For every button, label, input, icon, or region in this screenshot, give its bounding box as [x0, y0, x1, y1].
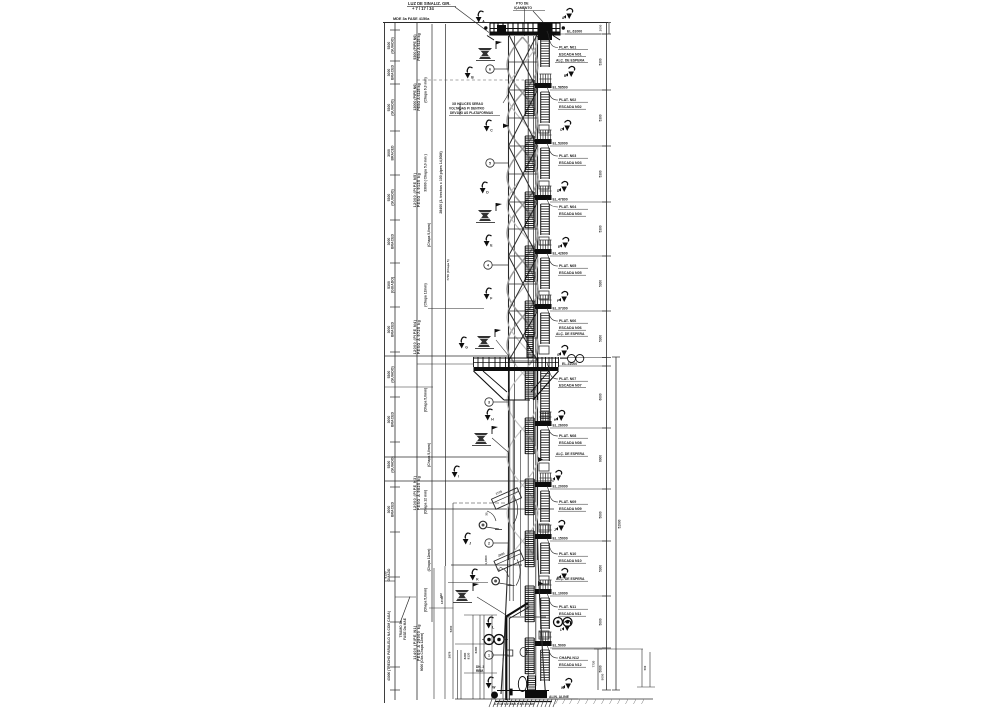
svg-text:PLAT. N08: PLAT. N08	[559, 434, 576, 438]
svg-text:(Chapa 5,0mm): (Chapa 5,0mm)	[427, 223, 431, 247]
svg-text:F: F	[557, 299, 559, 303]
svg-text:PLAT. N02: PLAT. N02	[559, 98, 576, 102]
svg-text:5300: 5300	[599, 225, 603, 232]
svg-text:EL.15000: EL.15000	[553, 537, 568, 541]
svg-text:EL.10000: EL.10000	[553, 592, 568, 596]
svg-text:8130: 8130	[467, 652, 471, 659]
svg-text:5000: 5000	[599, 511, 603, 518]
svg-text:PESO A 9125 kg: PESO A 9125 kg	[417, 173, 421, 208]
svg-text:5300: 5300	[599, 114, 603, 121]
svg-text:ESCADA N12: ESCADA N12	[559, 663, 582, 667]
svg-text:5: 5	[489, 161, 491, 165]
svg-text:G: G	[557, 353, 560, 357]
svg-text:(GUIADO): (GUIADO)	[391, 366, 395, 382]
svg-text:EL.5000: EL.5000	[553, 644, 566, 648]
svg-text:4: 4	[487, 263, 489, 267]
svg-text:ESCADA N03: ESCADA N03	[559, 161, 582, 165]
svg-text:PTO DE: PTO DE	[516, 2, 529, 6]
svg-text:PLAT. N04: PLAT. N04	[559, 205, 576, 209]
svg-text:9000 (Obs Chapa 12mm): 9000 (Obs Chapa 12mm)	[420, 633, 424, 671]
svg-text:(Chapa 6,3 mm): (Chapa 6,3 mm)	[424, 77, 428, 102]
svg-text:DEV1DO AS PLATAFORMAS: DEV1DO AS PLATAFORMAS	[450, 111, 493, 115]
svg-text:BRACED: BRACED	[391, 234, 395, 249]
svg-text:1,3060: 1,3060	[484, 555, 488, 565]
svg-text:5000: 5000	[601, 673, 605, 680]
svg-text:J: J	[469, 542, 471, 546]
svg-text:5000: 5000	[599, 618, 603, 625]
svg-text:(GUIADO): (GUIADO)	[391, 37, 395, 53]
svg-text:+ 7 / 17 / 34: + 7 / 17 / 34	[412, 6, 434, 11]
svg-text:FASE Da MAE: FASE Da MAE	[403, 617, 407, 640]
svg-text:EL.20000: EL.20000	[553, 485, 568, 489]
svg-text:ESCADA N07: ESCADA N07	[559, 384, 582, 388]
svg-text:(Chapa 5,0mm): (Chapa 5,0mm)	[427, 443, 431, 467]
svg-text:PLAT. N06: PLAT. N06	[559, 319, 576, 323]
svg-text:52900: 52900	[618, 519, 622, 528]
svg-text:J: J	[554, 528, 556, 532]
svg-text:33000 ( Chapa 5,0 mm ): 33000 ( Chapa 5,0 mm )	[424, 154, 428, 192]
svg-text:GUIADO: GUIADO	[387, 568, 391, 581]
svg-text:PLAT. N05: PLAT. N05	[559, 264, 576, 268]
svg-text:EL.26000: EL.26000	[553, 424, 568, 428]
svg-text:35: 35	[485, 512, 489, 516]
svg-text:6000: 6000	[599, 393, 603, 400]
svg-text:EL.53000: EL.53000	[553, 142, 568, 146]
svg-text:ESCADA N04: ESCADA N04	[559, 212, 582, 216]
svg-text:ESCADA N06: ESCADA N06	[559, 326, 582, 330]
svg-text:I: I	[551, 478, 552, 482]
svg-text:L: L	[560, 628, 562, 632]
svg-text:5300: 5300	[599, 170, 603, 177]
svg-text:9-4 1/2 0-2 3/8 0-5 3/4 1-0: 9-4 1/2 0-2 3/8 0-5 3/4 1-0 3/8	[494, 702, 534, 706]
svg-text:ESCADA N08: ESCADA N08	[559, 441, 582, 445]
svg-text:502: 502	[439, 593, 443, 598]
svg-text:PLAT. N11: PLAT. N11	[559, 605, 576, 609]
svg-text:5300: 5300	[599, 335, 603, 342]
svg-text:(GUIADO): (GUIADO)	[391, 277, 395, 293]
svg-text:BRACED: BRACED	[391, 145, 395, 160]
svg-text:PESO A 6125 kg: PESO A 6125 kg	[417, 83, 421, 111]
svg-text:2000: 2000	[599, 24, 603, 31]
svg-text:L: L	[492, 626, 494, 630]
svg-text:5300: 5300	[599, 280, 603, 287]
svg-text:ESCADA N11: ESCADA N11	[559, 612, 581, 616]
svg-text:6000: 6000	[599, 455, 603, 462]
svg-text:3G HELICES SERAO: 3G HELICES SERAO	[452, 102, 484, 106]
svg-text:5000: 5000	[599, 665, 603, 672]
svg-text:2: 2	[488, 541, 490, 545]
svg-text:BRACED: BRACED	[391, 322, 395, 337]
svg-text:5300: 5300	[599, 565, 603, 572]
svg-text:EL.61000: EL.61000	[567, 30, 582, 34]
svg-text:VOLTADAS P/ DENTRO: VOLTADAS P/ DENTRO	[449, 107, 485, 111]
svg-text:(GUIADO): (GUIADO)	[391, 189, 395, 205]
svg-text:ESCADA N01: ESCADA N01	[559, 53, 582, 57]
svg-text:3878: 3878	[448, 651, 452, 658]
svg-text:EL.31000: EL.31000	[562, 362, 577, 366]
svg-text:ALÇ. DE ESPERA: ALÇ. DE ESPERA	[556, 452, 585, 456]
svg-text:5300: 5300	[449, 625, 453, 632]
svg-text:EL.42600: EL.42600	[553, 252, 568, 256]
svg-text:BRACED: BRACED	[391, 412, 395, 427]
svg-text:BRACED: BRACED	[391, 502, 395, 517]
svg-text:(Chapa 12mm): (Chapa 12mm)	[424, 283, 428, 306]
svg-text:EL.58500: EL.58500	[553, 86, 568, 90]
svg-text:PLAT. N09: PLAT. N09	[559, 500, 576, 504]
svg-text:ESCADA N10: ESCADA N10	[559, 559, 582, 563]
svg-text:EL.37300: EL.37300	[553, 307, 568, 311]
svg-text:MDE 3a FASE 4150a: MDE 3a FASE 4150a	[393, 17, 430, 21]
svg-text:(Chapa 12 mm): (Chapa 12 mm)	[424, 490, 428, 514]
svg-text:ALÇ. DE ESPERA: ALÇ. DE ESPERA	[556, 59, 585, 63]
svg-text:PLAT. N10: PLAT. N10	[559, 552, 576, 556]
svg-text:PESO A 9725 kg: PESO A 9725 kg	[417, 320, 421, 355]
svg-text:(GUIADO): (GUIADO)	[391, 456, 395, 472]
svg-text:6280: 6280	[474, 646, 478, 653]
svg-text:43000 (TRECHO PARALELO NA COM: 43000 (TRECHO PARALELO NA COM CAGA)	[387, 611, 391, 681]
svg-text:5300: 5300	[599, 58, 603, 65]
svg-text:G: G	[465, 346, 468, 350]
svg-text:(Chapa 12mm): (Chapa 12mm)	[427, 549, 431, 572]
svg-text:ALÇ. DE ESPERA: ALÇ. DE ESPERA	[556, 332, 585, 336]
svg-text:BRACED: BRACED	[391, 65, 395, 80]
svg-text:6: 6	[489, 67, 491, 71]
svg-text:CHAPA N12: CHAPA N12	[559, 656, 579, 660]
svg-text:35: 35	[497, 568, 501, 572]
svg-text:ESCADA N09: ESCADA N09	[559, 507, 582, 511]
svg-text:I: I	[458, 475, 459, 479]
svg-text:(Chapa 5,0mm): (Chapa 5,0mm)	[424, 388, 428, 412]
svg-text:PLAT. N07: PLAT. N07	[559, 377, 576, 381]
svg-text:7730: 7730	[592, 660, 596, 667]
svg-text:3: 3	[488, 400, 490, 404]
svg-text:(Chapa 5,0mm): (Chapa 5,0mm)	[424, 588, 428, 612]
svg-text:(GUIADO): (GUIADO)	[391, 99, 395, 115]
svg-text:REM.: REM.	[476, 669, 484, 673]
svg-text:ESCADA N02: ESCADA N02	[559, 105, 582, 109]
svg-text:EL.47800: EL.47800	[553, 198, 568, 202]
svg-text:500: 500	[643, 665, 647, 670]
svg-text:ALIN. ALINE: ALIN. ALINE	[549, 695, 570, 699]
svg-text:IÇAMENTO: IÇAMENTO	[514, 6, 532, 10]
svg-text:PESO A 5125 kg: PESO A 5125 kg	[417, 33, 421, 61]
svg-text:PLAT. N01: PLAT. N01	[559, 46, 576, 50]
svg-text:PLAT. N03: PLAT. N03	[559, 154, 576, 158]
svg-text:F: F	[490, 297, 492, 301]
svg-text:28400 (3- trechos c 100 pipes: 28400 (3- trechos c 100 pipes 14,50M)	[439, 151, 443, 213]
svg-text:7730 (Chapa 5): 7730 (Chapa 5)	[446, 259, 450, 280]
svg-text:ESCADA N05: ESCADA N05	[559, 271, 582, 275]
svg-text:1: 1	[488, 653, 490, 657]
